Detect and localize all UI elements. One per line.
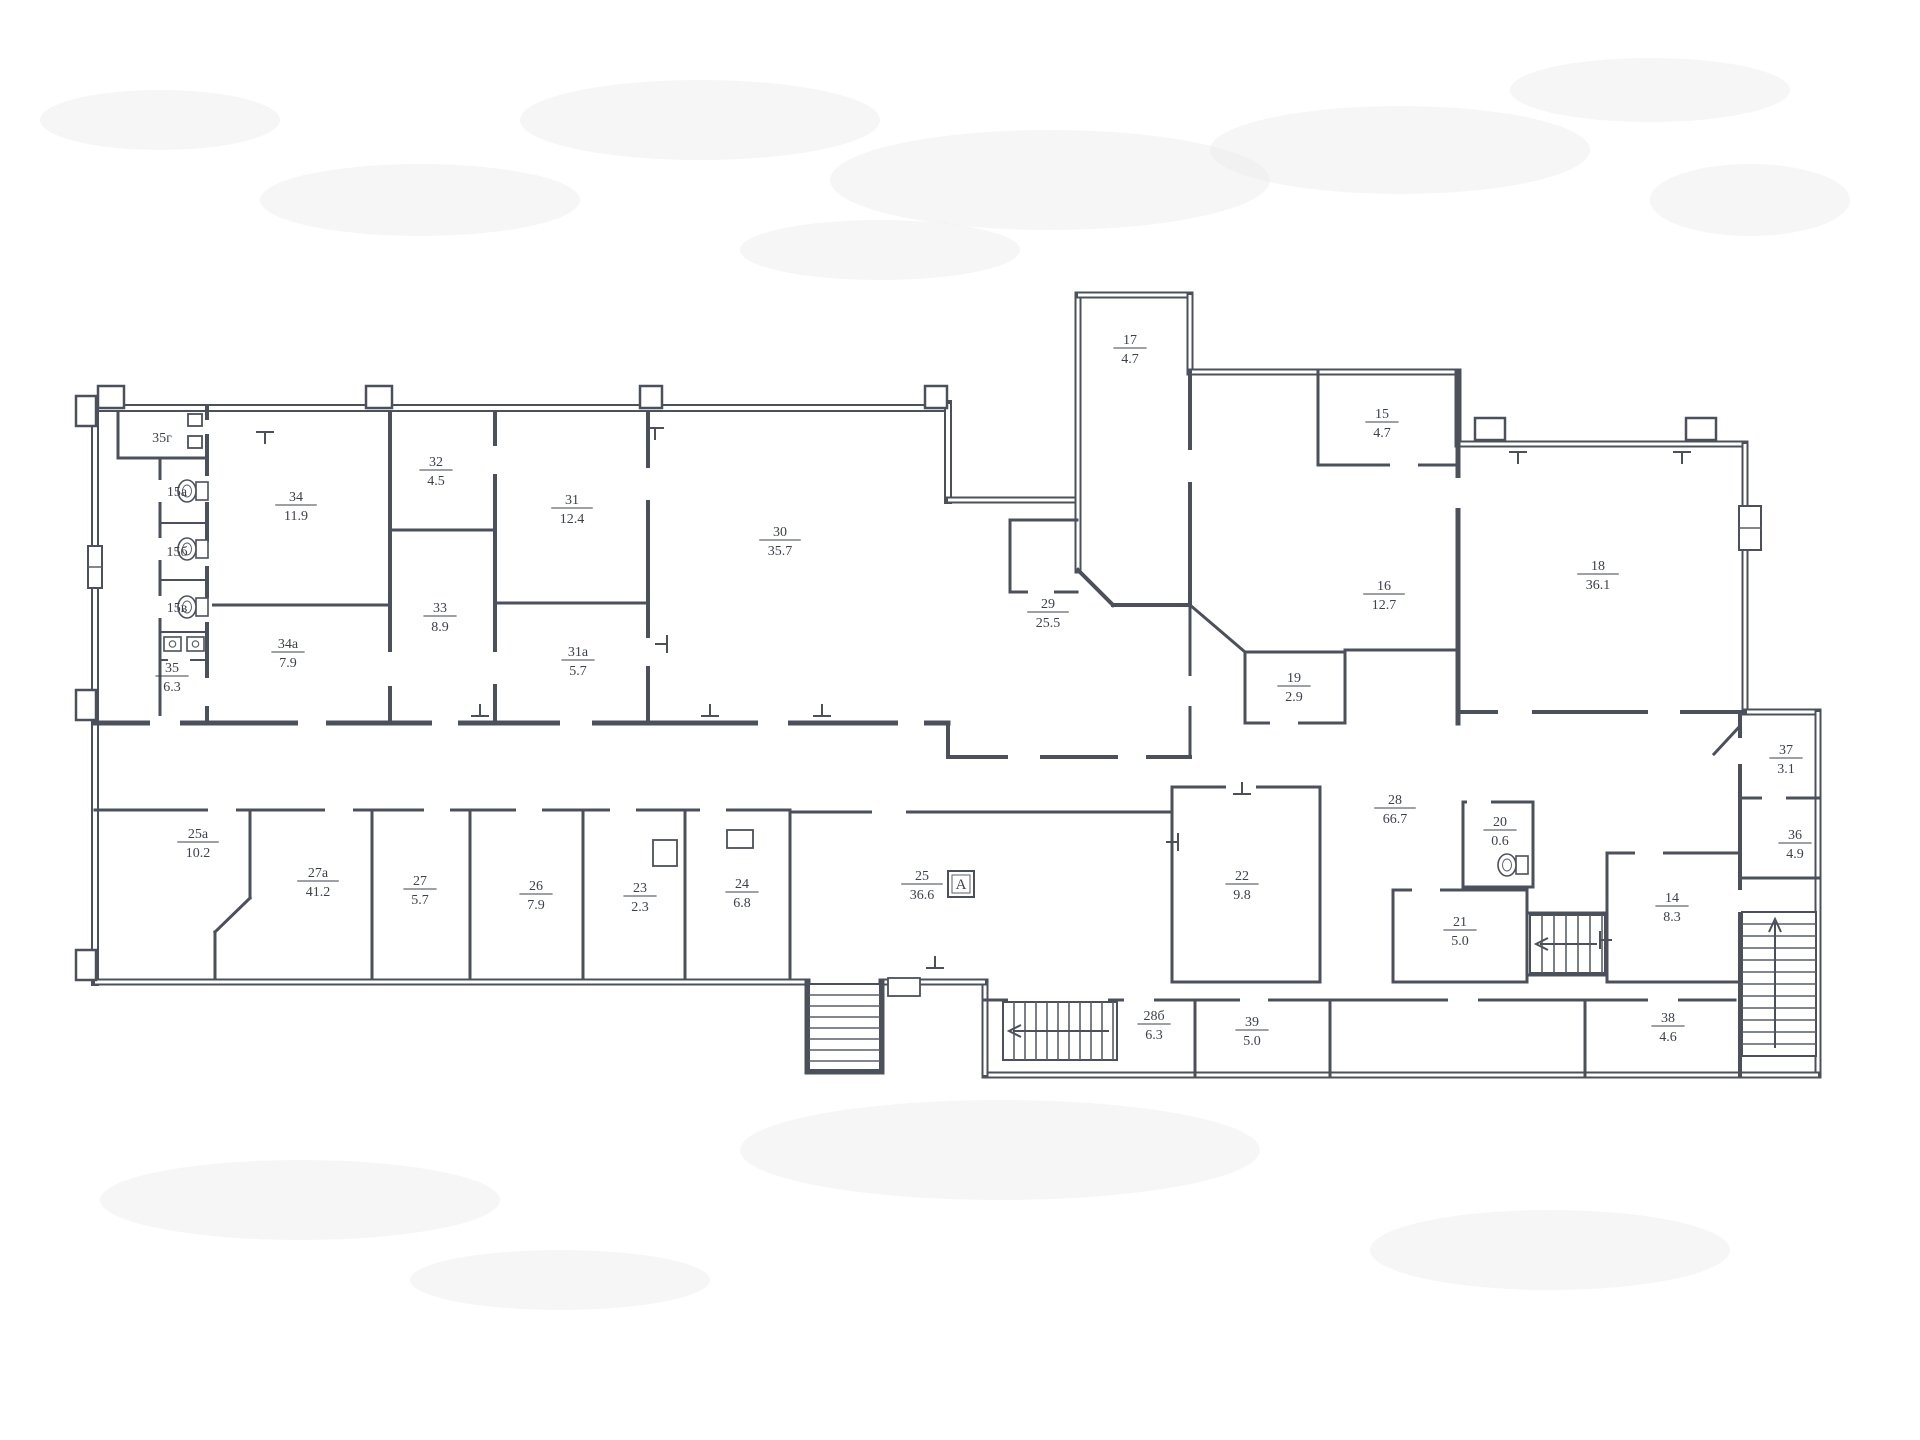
door-opening [1185, 450, 1195, 482]
staircase [1530, 915, 1605, 973]
svg-text:33: 33 [433, 601, 447, 616]
floor-plan-svg: А35г15а15б15в356.33411.934а7.9324.5338.9… [0, 0, 1920, 1440]
room-label-15б: 15б [166, 545, 187, 560]
svg-text:А: А [956, 877, 967, 893]
scan-smudge [740, 220, 1020, 280]
svg-text:8.3: 8.3 [1663, 910, 1681, 925]
door-opening [1735, 738, 1745, 764]
svg-text:5.0: 5.0 [1451, 934, 1469, 949]
pilaster [366, 386, 392, 408]
svg-text:31а: 31а [568, 645, 589, 660]
door-opening [208, 803, 236, 817]
door-opening [156, 480, 164, 502]
svg-text:25а: 25а [188, 827, 209, 842]
scan-smudge [1210, 106, 1590, 194]
svg-text:15а: 15а [167, 485, 188, 500]
door-opening [490, 652, 500, 684]
door-opening [1118, 750, 1146, 764]
svg-text:39: 39 [1245, 1015, 1259, 1030]
door-leaf-box [653, 840, 677, 866]
door-opening [1240, 993, 1268, 1007]
svg-text:9.8: 9.8 [1233, 888, 1251, 903]
staircase [1003, 1002, 1117, 1060]
svg-text:37: 37 [1779, 743, 1793, 758]
svg-text:6.8: 6.8 [733, 896, 751, 911]
scan-smudge [410, 1250, 710, 1310]
scan-smudge [100, 1160, 500, 1240]
svg-text:34: 34 [289, 490, 303, 505]
door-opening [325, 803, 353, 817]
door-opening [490, 446, 500, 474]
pilaster [76, 690, 96, 720]
svg-text:24: 24 [735, 877, 749, 892]
svg-text:29: 29 [1041, 597, 1055, 612]
svg-text:36.6: 36.6 [910, 888, 935, 903]
svg-text:26: 26 [529, 879, 543, 894]
pilaster [76, 396, 96, 426]
door-opening [758, 716, 788, 730]
door-leaf-box [188, 414, 202, 426]
door-opening [1453, 478, 1463, 508]
door-opening [1648, 705, 1680, 719]
door-opening [1735, 890, 1745, 912]
sink-fixture [187, 637, 204, 651]
svg-text:17: 17 [1123, 333, 1137, 348]
door-opening [1124, 993, 1154, 1007]
svg-text:4.7: 4.7 [1373, 426, 1391, 441]
room-label-35г: 35г [152, 431, 172, 446]
door-opening [1008, 750, 1040, 764]
svg-text:18: 18 [1591, 559, 1605, 574]
door-opening [1270, 716, 1298, 730]
svg-text:3.1: 3.1 [1777, 762, 1795, 777]
door-opening [610, 803, 636, 817]
svg-text:19: 19 [1287, 671, 1301, 686]
door-opening [1467, 795, 1491, 809]
door-opening [1448, 993, 1478, 1007]
svg-text:22: 22 [1235, 869, 1249, 884]
svg-text:23: 23 [633, 881, 647, 896]
svg-text:8.9: 8.9 [431, 620, 449, 635]
svg-text:5.7: 5.7 [411, 893, 429, 908]
scan-smudge [740, 1100, 1260, 1200]
svg-text:6.3: 6.3 [163, 680, 181, 695]
door-leaf-box [188, 436, 202, 448]
svg-text:7.9: 7.9 [279, 656, 297, 671]
door-opening [643, 638, 653, 666]
toilet-fixture [1498, 854, 1528, 876]
door-opening [516, 803, 542, 817]
svg-text:28: 28 [1388, 793, 1402, 808]
svg-text:16: 16 [1377, 579, 1391, 594]
svg-text:38: 38 [1661, 1011, 1675, 1026]
door-opening [298, 716, 326, 730]
svg-text:2.9: 2.9 [1285, 690, 1303, 705]
room-label-15а: 15а [167, 485, 188, 500]
svg-text:28б: 28б [1143, 1009, 1164, 1024]
scan-smudge [830, 130, 1270, 230]
svg-text:15: 15 [1375, 407, 1389, 422]
svg-text:5.0: 5.0 [1243, 1034, 1261, 1049]
pilaster [640, 386, 662, 408]
svg-text:4.7: 4.7 [1121, 352, 1139, 367]
door-opening [385, 652, 395, 686]
door-opening [898, 716, 924, 730]
door-opening [1185, 676, 1195, 706]
door-opening [424, 803, 450, 817]
marker-box-A: А [948, 871, 974, 897]
svg-text:14: 14 [1665, 891, 1679, 906]
door-opening [1648, 993, 1678, 1007]
floor-plan-scan-page: А35г15а15б15в356.33411.934а7.9324.5338.9… [0, 0, 1920, 1440]
door-opening [643, 468, 653, 500]
pilaster [1475, 418, 1505, 440]
svg-text:12.4: 12.4 [560, 512, 585, 527]
pilaster [76, 950, 96, 980]
svg-text:66.7: 66.7 [1383, 812, 1408, 827]
scan-smudge [1370, 1210, 1730, 1290]
svg-text:21: 21 [1453, 915, 1467, 930]
door-opening [1635, 846, 1663, 860]
svg-text:41.2: 41.2 [306, 885, 331, 900]
pilaster [98, 386, 124, 408]
door-opening [432, 716, 458, 730]
door-opening [150, 716, 180, 730]
sink-fixture [164, 637, 181, 651]
svg-text:32: 32 [429, 455, 443, 470]
svg-text:27а: 27а [308, 866, 329, 881]
door-opening [156, 538, 164, 560]
svg-text:25: 25 [915, 869, 929, 884]
door-opening [1762, 791, 1786, 805]
door-opening [1412, 883, 1440, 897]
svg-text:11.9: 11.9 [284, 509, 308, 524]
scan-smudge [520, 80, 880, 160]
svg-text:35.7: 35.7 [768, 544, 793, 559]
pilaster [1686, 418, 1716, 440]
svg-text:4.6: 4.6 [1659, 1030, 1677, 1045]
svg-text:4.9: 4.9 [1786, 847, 1804, 862]
svg-text:6.3: 6.3 [1145, 1028, 1163, 1043]
scan-smudge [40, 90, 280, 150]
svg-text:35г: 35г [152, 431, 172, 446]
door-opening [156, 596, 164, 618]
door-opening [560, 716, 592, 730]
scan-smudge [260, 164, 580, 236]
staircase [1742, 912, 1816, 1056]
door-opening [1498, 705, 1532, 719]
svg-text:15в: 15в [167, 601, 188, 616]
svg-text:25.5: 25.5 [1036, 616, 1061, 631]
svg-text:35: 35 [165, 661, 179, 676]
pilaster [925, 386, 947, 408]
svg-text:7.9: 7.9 [527, 898, 545, 913]
svg-text:30: 30 [773, 525, 787, 540]
room-label-15в: 15в [167, 601, 188, 616]
door-opening [872, 805, 906, 819]
svg-text:34а: 34а [278, 637, 299, 652]
svg-text:4.5: 4.5 [427, 474, 445, 489]
svg-text:15б: 15б [166, 545, 187, 560]
door-opening [202, 678, 212, 706]
svg-text:10.2: 10.2 [186, 846, 211, 861]
door-opening [700, 803, 726, 817]
svg-text:12.7: 12.7 [1372, 598, 1397, 613]
svg-text:36.1: 36.1 [1586, 578, 1611, 593]
svg-text:31: 31 [565, 493, 579, 508]
svg-text:27: 27 [413, 874, 427, 889]
svg-text:5.7: 5.7 [569, 664, 587, 679]
scan-smudge [1510, 58, 1790, 122]
svg-text:20: 20 [1493, 815, 1507, 830]
door-opening [1390, 458, 1418, 472]
scan-smudge [1650, 164, 1850, 236]
door-leaf-box [727, 830, 753, 848]
svg-text:0.6: 0.6 [1491, 834, 1509, 849]
door-leaf-box [888, 978, 920, 996]
door-opening [202, 420, 212, 434]
svg-text:36: 36 [1788, 828, 1802, 843]
svg-text:2.3: 2.3 [631, 900, 649, 915]
staircase [809, 984, 880, 1070]
